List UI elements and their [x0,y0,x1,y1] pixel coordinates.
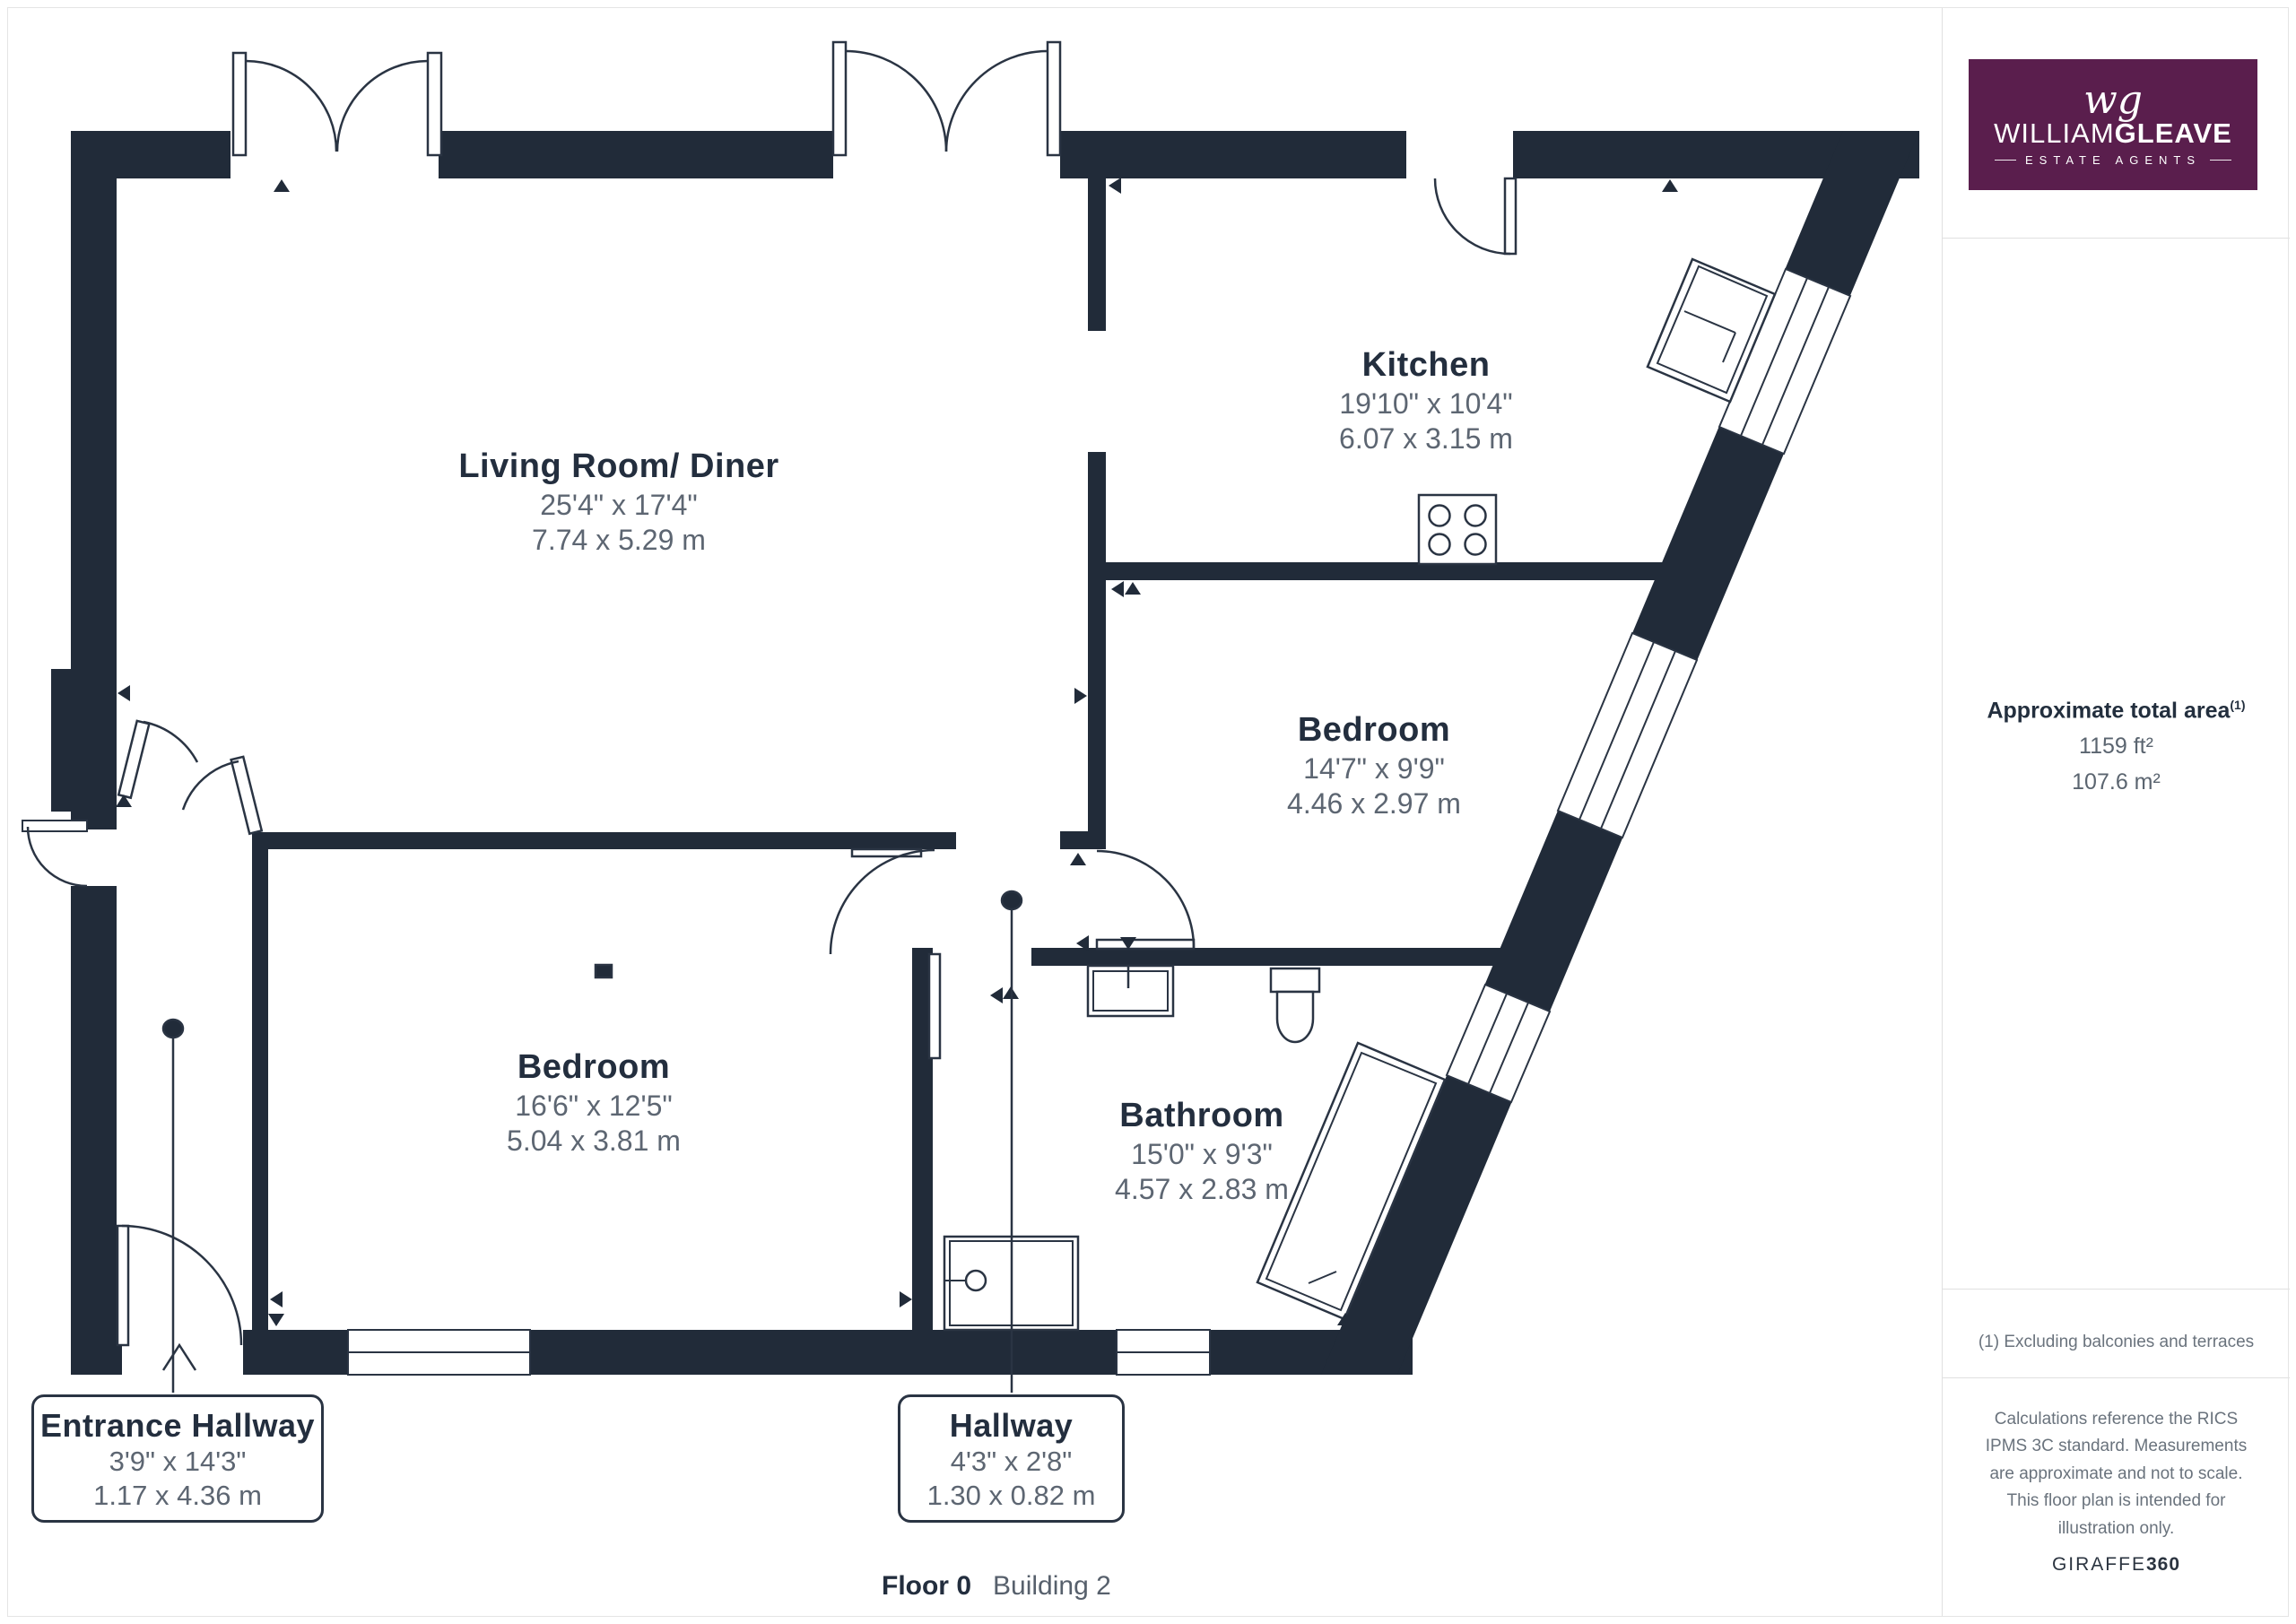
logo-name: WILLIAMGLEAVE [1994,119,2232,147]
room-label-bathroom: Bathroom 15'0" x 9'3" 4.57 x 2.83 m [1115,1096,1289,1207]
window-bathroom-bottom [1117,1330,1210,1375]
entrance-arrow-icon [163,1345,196,1370]
giraffe-360: 360 [2146,1554,2180,1575]
logo-monogram-icon: wg [2083,83,2143,118]
room-dims-imperial: 14'7" x 9'9" [1287,751,1461,786]
area-footnote: (1) Excluding balconies and terraces [1943,1333,2290,1352]
callout-dims-metric: 1.30 x 0.82 m [906,1479,1117,1513]
total-area-ft: 1159 ft² [1943,734,2290,760]
building-label: Building 2 [993,1571,1111,1602]
sidebar-divider [1943,1289,2290,1290]
room-name: Bathroom [1115,1096,1289,1137]
room-dims-imperial: 25'4" x 17'4" [458,488,778,523]
kitchen-door [1435,178,1516,254]
sidebar-divider [1943,1377,2290,1378]
logo-name-part2: GLEAVE [2115,117,2232,149]
floorplan-page: Living Room/ Diner 25'4" x 17'4" 7.74 x … [0,0,2296,1624]
room-dims-metric: 4.46 x 2.97 m [1287,786,1461,821]
callout-dims-imperial: 4'3" x 2'8" [906,1445,1117,1479]
room-label-living: Living Room/ Diner 25'4" x 17'4" 7.74 x … [458,447,778,558]
chimney-mark [596,965,612,977]
floor-building-label: Floor 0 Building 2 [882,1571,1111,1602]
info-sidebar: wg WILLIAMGLEAVE ESTATE AGENTS Approxima… [1942,7,2290,1617]
callout-entrance-hallway: Entrance Hallway 3'9" x 14'3" 1.17 x 4.3… [31,1394,324,1523]
total-area-label: Approximate total area [1987,698,2230,723]
room-name: Kitchen [1339,345,1513,386]
entrance-hallway-leader [163,1020,183,1393]
total-area-superscript: (1) [2230,698,2245,712]
bathroom-door [1097,851,1194,949]
tagline-text: ESTATE AGENTS [2025,153,2201,167]
total-area-m: 107.6 m² [1943,769,2290,795]
logo-tagline: ESTATE AGENTS [1995,153,2231,167]
total-area-title: Approximate total area(1) [1943,698,2290,724]
total-area-block: Approximate total area(1) 1159 ft² 107.6… [1943,698,2290,795]
floor-label: Floor 0 [882,1571,971,1602]
stove-icon [1419,495,1496,564]
room-name: Bedroom [1287,710,1461,751]
tagline-line-left [1995,160,2016,161]
doors [28,42,1516,1345]
callout-dims-metric: 1.17 x 4.36 m [39,1479,316,1513]
entrance-double-doors [118,721,262,834]
side-entrance-door [28,827,87,886]
disclaimer-text: Calculations reference the RICS IPMS 3C … [1980,1406,2252,1542]
sidebar-divider [1943,238,2290,239]
room-label-bedroom-left: Bedroom 16'6" x 12'5" 5.04 x 3.81 m [507,1047,681,1159]
double-door-2 [833,42,1060,155]
agency-logo: wg WILLIAMGLEAVE ESTATE AGENTS [1969,59,2257,190]
callout-dims-imperial: 3'9" x 14'3" [39,1445,316,1479]
room-dims-imperial: 19'10" x 10'4" [1339,386,1513,421]
giraffe-text: GIRAFFE [2052,1554,2146,1575]
room-dims-metric: 7.74 x 5.29 m [458,523,778,558]
logo-name-part1: WILLIAM [1994,117,2114,149]
room-label-kitchen: Kitchen 19'10" x 10'4" 6.07 x 3.15 m [1339,345,1513,456]
window-bedroom-diagonal [1558,633,1697,838]
room-dims-imperial: 16'6" x 12'5" [507,1089,681,1124]
tagline-line-right [2210,160,2231,161]
room-dims-metric: 6.07 x 3.15 m [1339,421,1513,456]
room-label-bedroom-right: Bedroom 14'7" x 9'9" 4.46 x 2.97 m [1287,710,1461,821]
sink-icon [1088,966,1173,1016]
room-dims-imperial: 15'0" x 9'3" [1115,1137,1289,1172]
callout-name: Entrance Hallway [39,1406,316,1445]
front-entrance-door [117,1226,241,1345]
room-name: Living Room/ Diner [458,447,778,488]
giraffe360-logo: GIRAFFE360 [1943,1554,2290,1576]
side-door-leaf [22,821,87,831]
toilet-icon [1271,968,1319,1042]
window-bedroom-bottom [348,1330,530,1375]
callout-name: Hallway [906,1406,1117,1445]
double-door-1 [233,53,441,155]
room-name: Bedroom [507,1047,681,1089]
room-dims-metric: 4.57 x 2.83 m [1115,1172,1289,1207]
room-dims-metric: 5.04 x 3.81 m [507,1124,681,1159]
callout-hallway: Hallway 4'3" x 2'8" 1.30 x 0.82 m [898,1394,1125,1523]
